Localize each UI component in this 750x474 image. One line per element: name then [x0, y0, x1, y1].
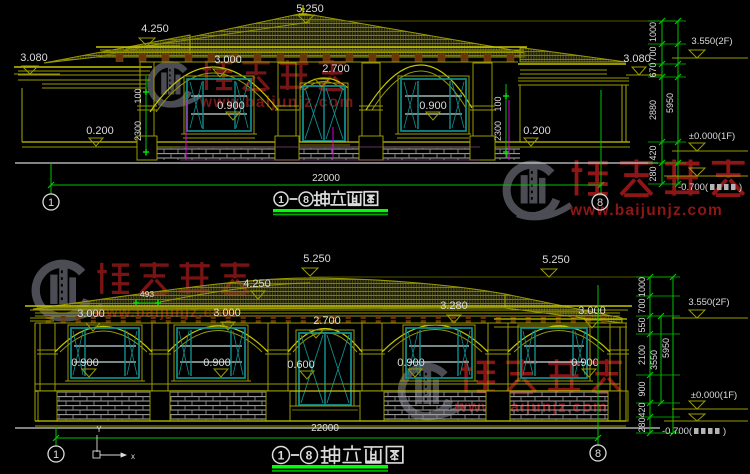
svg-text:2.700: 2.700: [322, 63, 350, 75]
svg-text:22000: 22000: [311, 423, 339, 434]
svg-text:1: 1: [278, 448, 285, 462]
svg-text:22000: 22000: [312, 173, 340, 184]
svg-text:0.900: 0.900: [419, 100, 447, 112]
svg-text:4.250: 4.250: [243, 278, 271, 290]
svg-text:8: 8: [597, 197, 603, 209]
svg-text:900: 900: [637, 381, 647, 396]
svg-text:280: 280: [637, 417, 647, 432]
svg-text:700: 700: [648, 46, 658, 61]
svg-text:8: 8: [595, 448, 601, 460]
svg-text:5950: 5950: [661, 338, 671, 358]
svg-text:3.000: 3.000: [214, 54, 242, 66]
svg-text:420: 420: [637, 402, 647, 417]
svg-text:0.900: 0.900: [71, 357, 99, 369]
svg-text:1: 1: [278, 194, 284, 206]
svg-text:550: 550: [637, 317, 647, 332]
svg-text:): ): [739, 182, 742, 193]
svg-text:±0.000(1F): ±0.000(1F): [691, 390, 737, 401]
svg-text:2880: 2880: [648, 100, 658, 120]
svg-text:8: 8: [303, 194, 309, 206]
svg-text:0.900: 0.900: [571, 357, 599, 369]
svg-text:100: 100: [493, 96, 503, 111]
svg-text:1000: 1000: [648, 22, 658, 42]
svg-text:420: 420: [648, 145, 658, 160]
svg-text:): ): [723, 426, 726, 437]
svg-text:3.550(2F): 3.550(2F): [691, 36, 732, 47]
svg-text:-0.700(: -0.700(: [662, 426, 693, 437]
svg-text:-0.700(: -0.700(: [678, 182, 709, 193]
svg-text:2100: 2100: [637, 345, 647, 365]
svg-text:3.550(2F): 3.550(2F): [688, 297, 729, 308]
svg-text:493: 493: [140, 289, 154, 299]
svg-text:0.900: 0.900: [203, 357, 231, 369]
svg-text:2.700: 2.700: [313, 315, 341, 327]
svg-text:0.200: 0.200: [86, 125, 114, 137]
svg-text:5.250: 5.250: [296, 3, 324, 15]
svg-text:1000: 1000: [637, 277, 647, 297]
svg-text:3.000: 3.000: [578, 305, 606, 317]
svg-text:280: 280: [648, 166, 658, 181]
svg-text:4.250: 4.250: [141, 23, 169, 35]
svg-text:0.200: 0.200: [523, 125, 551, 137]
svg-text:8: 8: [306, 448, 313, 462]
svg-text:1: 1: [48, 197, 54, 209]
svg-text:x: x: [131, 452, 135, 461]
svg-text:±0.000(1F): ±0.000(1F): [689, 131, 735, 142]
svg-text:700: 700: [637, 298, 647, 313]
svg-text:Y: Y: [96, 425, 102, 434]
svg-text:100: 100: [133, 88, 143, 103]
svg-text:3550: 3550: [649, 350, 659, 370]
svg-text:0.600: 0.600: [287, 359, 315, 371]
svg-text:3.000: 3.000: [213, 307, 241, 319]
svg-text:0.900: 0.900: [217, 100, 245, 112]
svg-text:3.080: 3.080: [623, 53, 651, 65]
svg-text:5950: 5950: [665, 93, 675, 113]
svg-text:670: 670: [648, 62, 658, 77]
svg-text:0.900: 0.900: [397, 357, 425, 369]
svg-text:3.080: 3.080: [20, 52, 48, 64]
svg-text:1: 1: [53, 449, 59, 461]
svg-text:5.250: 5.250: [303, 253, 331, 265]
svg-text:3.280: 3.280: [440, 300, 468, 312]
svg-text:3.000: 3.000: [77, 308, 105, 320]
svg-text:2300: 2300: [133, 121, 143, 141]
svg-text:5.250: 5.250: [542, 254, 570, 266]
svg-text:2300: 2300: [493, 121, 503, 141]
